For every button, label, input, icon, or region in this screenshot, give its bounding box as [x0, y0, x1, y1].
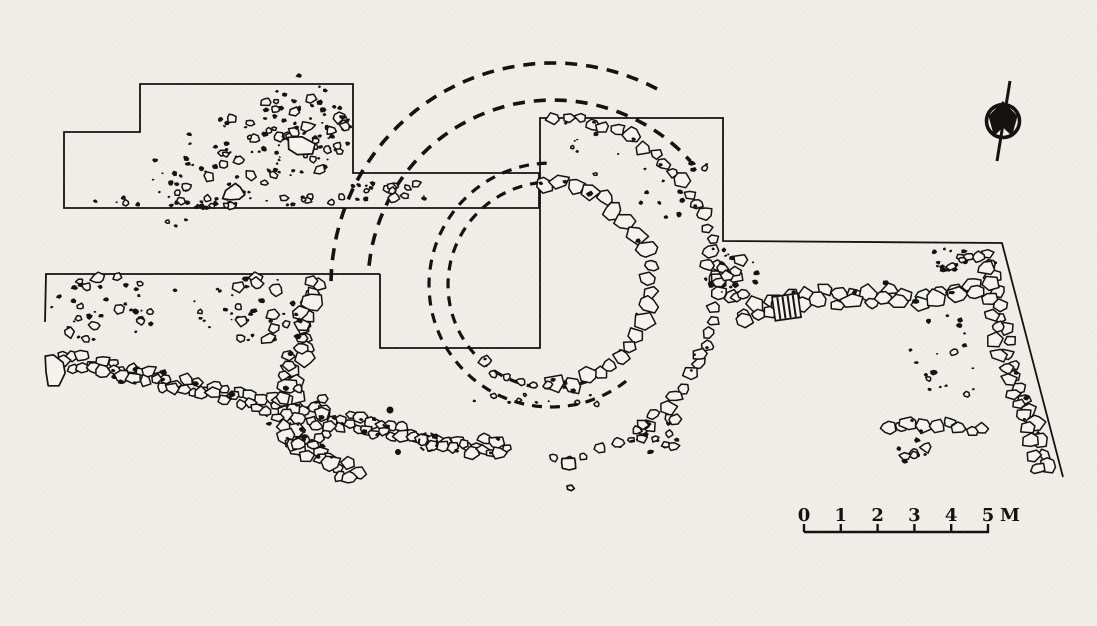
nw-dense-cluster-debris: [289, 174, 292, 176]
nw-trench-debris-debris: [191, 164, 194, 167]
outer-ring-wall-stone: [704, 327, 714, 339]
between-rings-specks-debris: [576, 139, 579, 141]
nw-dense-cluster-debris: [309, 117, 312, 120]
outer-ring-tail-cluster-stone: [661, 442, 669, 448]
inner-ring-wall-sparse-stone: [543, 381, 553, 389]
ring-junction-cluster-debris: [722, 247, 727, 252]
south-curved-wall-stone: [294, 344, 308, 354]
hatched-stone: [772, 293, 801, 320]
nw-trench-bottom-row-stone: [339, 194, 345, 200]
southwest-diagonal-wall-stone: [96, 365, 111, 378]
outer-ring-tail-cluster-debris: [674, 438, 679, 442]
inner-ring-wall-stone: [645, 261, 659, 271]
nw-trench-bottom-row-debris: [265, 200, 268, 202]
sw-trench-center-cluster-debris: [246, 339, 250, 342]
east-west-wall-stone: [911, 297, 929, 312]
nw-dense-cluster-debris: [274, 151, 279, 155]
east-trench-wall-stone: [1000, 364, 1014, 374]
outer-ring-wall-tail-stone: [550, 454, 558, 462]
scale-label-5: 5: [982, 505, 995, 526]
ring-junction-cluster-debris: [732, 282, 740, 288]
outer-ring-wall-tail-stone: [580, 453, 587, 460]
nw-trench-debris-debris: [291, 99, 297, 103]
nw-trench-debris-debris: [185, 162, 191, 166]
ring-junction-cluster-debris: [752, 261, 754, 263]
east-trench-wall-stone: [982, 276, 999, 290]
nw-dense-cluster-debris: [317, 157, 321, 160]
inner-ring-wall-stone: [624, 342, 636, 353]
nw-trench-debris-debris: [172, 171, 177, 177]
isolated-stone-south: [562, 458, 576, 470]
southwest-diagonal-wall-stone: [180, 373, 193, 384]
nw-dense-cluster-debris: [318, 145, 323, 149]
nw-trench-debris-stone: [327, 126, 336, 134]
sw-trench-northwest-cluster-debris: [56, 294, 62, 299]
southwest-diagonal-wall-stone: [237, 400, 246, 410]
sw-trench-mid-specks-debris: [172, 288, 177, 292]
nw-trench-debris-debris: [224, 141, 230, 146]
outer-ring-wall-stone: [574, 114, 585, 123]
sw-trench-northwest-cluster-debris: [97, 285, 102, 290]
nw-trench-debris-debris: [152, 179, 155, 181]
scale-bar-ticks: [804, 524, 989, 532]
nw-trench-debris-debris: [263, 117, 268, 120]
nw-trench-debris-debris: [345, 142, 350, 146]
nw-trench-debris-stone: [223, 152, 230, 157]
sw-trench-mid-specks-stone: [198, 309, 203, 313]
nw-trench-bottom-row-debris: [214, 197, 218, 201]
outer-ring-wall-stone: [674, 173, 691, 188]
east-corner-cluster-debris: [936, 261, 941, 265]
speck-a: [395, 449, 401, 455]
east-trench-inner-specks-debris: [930, 370, 938, 376]
sw-trench-northwest-cluster-stone: [75, 316, 82, 321]
southeast-below-stones-stone: [920, 443, 931, 453]
outer-ring-wall-lower-stone: [661, 401, 678, 416]
inner-ring-wall-sparse-stone: [478, 355, 491, 366]
scale-label-4: 4: [945, 505, 958, 526]
ring-bottom-specks-stone: [524, 394, 527, 397]
nw-corridor-stones-debris: [370, 181, 376, 185]
south-wall-west-bulge-stone: [317, 395, 328, 404]
nw-dense-cluster-debris: [276, 162, 279, 165]
east-corner-cluster-debris: [961, 249, 968, 253]
south-curved-wall-stone: [277, 380, 297, 393]
outer-ring-wall-stone: [697, 208, 712, 220]
nw-dense-cluster-debris: [272, 114, 278, 119]
scale-label-0: 0: [798, 505, 811, 526]
nw-trench-debris-debris: [174, 224, 178, 227]
between-rings-specks-debris: [638, 200, 643, 205]
inner-ring-wall-stone: [579, 367, 596, 383]
nw-trench-bottom-row-stone: [204, 195, 211, 202]
ring-bottom-specks-debris: [473, 400, 476, 403]
nw-trench-debris-stone: [228, 114, 236, 122]
east-west-wall-stone: [736, 313, 753, 327]
nw-dense-cluster-debris: [244, 126, 248, 129]
east-trench-wall-stone: [982, 293, 998, 304]
southwest-diagonal-wall-stone: [437, 441, 449, 451]
nw-trench-bottom-row-debris: [290, 202, 296, 206]
nw-trench-debris-stone: [261, 180, 268, 185]
outer-ring-wall-stone: [706, 302, 719, 312]
nw-trench-bottom-row-stone: [328, 199, 335, 205]
inner-dashed-ring-inner: [448, 182, 606, 388]
southwest-diagonal-wall-stone: [165, 383, 179, 394]
east-trench-wall-stone: [1023, 433, 1039, 446]
nw-trench-debris-stone: [182, 183, 191, 190]
nw-trench-debris-debris: [179, 174, 183, 178]
inner-ring-wall-sparse-stone: [504, 374, 511, 381]
ring-bottom-specks-debris: [548, 400, 550, 402]
sw-trench-center-cluster-stone: [237, 335, 245, 342]
ring-bottom-specks-stone: [517, 398, 522, 402]
ring-junction-cluster-debris: [727, 253, 730, 255]
nw-trench-debris-debris: [296, 73, 302, 78]
nw-dense-cluster-debris: [263, 107, 270, 112]
east-trench-inner-specks-debris: [972, 388, 975, 390]
scale-label-1: 1: [835, 505, 848, 526]
nw-dense-cluster-debris: [321, 122, 324, 124]
nw-trench-debris-debris: [332, 105, 337, 109]
outer-ring-tail-cluster-stone: [666, 430, 673, 438]
between-rings-specks-debris: [657, 201, 662, 205]
east-trench-inner-specks-debris: [971, 367, 974, 369]
between-rings-specks-debris: [644, 190, 649, 194]
nw-corridor-stones-debris: [355, 198, 360, 201]
nw-trench-bottom-row-debris: [168, 204, 174, 208]
nw-dense-cluster-stone: [334, 143, 341, 150]
sw-trench-center-cluster-stone: [235, 317, 247, 327]
sw-trench-northwest-cluster-debris: [73, 321, 76, 323]
nw-trench-debris-debris: [184, 218, 188, 221]
sw-trench-center-cluster-debris: [276, 279, 279, 281]
between-rings-specks-debris: [677, 190, 683, 195]
nw-corridor-stones-stone: [405, 185, 412, 190]
between-rings-specks-debris: [677, 212, 683, 218]
sw-trench-center-cluster-stone: [269, 324, 280, 334]
east-corner-cluster-debris: [936, 265, 940, 268]
inner-ring-wall-debris: [635, 313, 638, 315]
nw-trench-debris-debris: [227, 182, 232, 186]
nw-diamond-stone: [288, 137, 315, 155]
nw-trench-bottom-row-debris: [249, 197, 252, 199]
nw-trench-debris-debris: [261, 146, 267, 152]
nw-trench-debris-debris: [224, 125, 226, 127]
nw-trench-debris-debris: [152, 158, 158, 162]
nw-corridor-stones-debris: [421, 197, 427, 201]
east-west-wall-stone: [809, 292, 826, 307]
outer-ring-wall-stone: [545, 113, 559, 125]
inner-ring-wall-stone: [639, 272, 655, 285]
sw-trench-mid-specks-debris: [208, 326, 212, 328]
east-trench-wall-stone: [1031, 463, 1045, 473]
southeast-below-stones-debris: [897, 446, 902, 451]
east-trench-inner-specks-debris: [936, 353, 938, 355]
east-trench-wall-stone: [1027, 450, 1041, 462]
ring-bottom-specks-stone: [491, 393, 497, 398]
nw-trench-debris-stone: [219, 161, 227, 169]
nw-dense-cluster-stone: [246, 120, 255, 125]
inner-ring-wall-sparse-stone: [529, 382, 537, 388]
nw-edge-stone: [223, 183, 245, 199]
nw-trench-debris-debris: [188, 142, 192, 145]
east-trench-inner-specks-debris: [944, 384, 947, 387]
nw-dense-cluster-debris: [320, 107, 327, 112]
outer-ring-wall-stone: [702, 224, 713, 232]
nw-dense-cluster-stone: [261, 98, 271, 105]
nw-dense-cluster-debris: [279, 156, 281, 158]
nw-dense-cluster-debris: [250, 151, 253, 153]
sw-trench-mid-specks-debris: [193, 300, 195, 302]
sw-trench-northwest-cluster-stone: [137, 318, 145, 325]
southeast-wall-stone: [880, 421, 896, 434]
sw-trench-center-cluster-debris: [258, 298, 265, 303]
sw-trench-center-cluster-debris: [291, 304, 295, 307]
sw-trench-northwest-cluster-debris: [103, 297, 109, 301]
nw-dense-cluster-debris: [293, 121, 297, 125]
outer-ring-tail-cluster-debris: [647, 450, 654, 455]
east-trench-inner-specks-stone: [950, 349, 958, 356]
outer-ring-wall-lower-stone: [683, 368, 698, 380]
nw-trench-debris-debris: [317, 99, 324, 105]
nw-trench-debris-debris: [218, 117, 223, 122]
east-trench-inner-specks-debris: [957, 317, 963, 322]
nw-dense-cluster-stone: [306, 94, 317, 103]
nw-trench-debris-stone: [175, 190, 181, 195]
nw-corridor-stones-stone: [413, 181, 422, 187]
sw-trench-center-cluster-stone: [261, 333, 275, 343]
ring-junction-cluster-debris: [752, 280, 758, 285]
nw-trench-debris-debris: [323, 89, 328, 93]
nw-dense-cluster-debris: [326, 159, 328, 161]
inner-ring-wall-sparse-stone: [489, 371, 496, 378]
sw-trench-center-cluster-stone: [283, 321, 290, 328]
outer-ring-wall-stone: [708, 235, 719, 243]
sw-trench-northwest-cluster-debris: [123, 302, 127, 305]
sw-trench-northwest-cluster-stone: [113, 273, 122, 281]
nw-dense-cluster-stone: [272, 106, 280, 112]
southeast-below-stones-debris: [923, 453, 927, 456]
nw-trench-debris-debris: [161, 172, 163, 174]
nw-corridor-stones-debris: [365, 185, 368, 188]
inner-ring-wall-stone: [635, 313, 656, 330]
sw-trench-northwest-cluster-debris: [134, 331, 137, 334]
southwest-diagonal-wall-stone: [344, 420, 355, 428]
scale-unit: M: [1000, 505, 1020, 526]
outer-ring-wall-stone: [708, 317, 720, 325]
north-corner-specks-stone: [702, 165, 708, 171]
north-arrow-icon: [987, 81, 1020, 161]
nw-corridor-stones-debris: [351, 184, 356, 189]
sw-trench-mid-specks-stone: [236, 304, 242, 310]
nw-dense-cluster-debris: [317, 134, 322, 137]
nw-corridor-stones-stone: [364, 189, 370, 193]
nw-trench-bottom-row-stone: [123, 200, 129, 207]
sw-trench-northwest-cluster-debris: [71, 298, 77, 303]
east-corner-cluster-debris: [932, 249, 937, 254]
nw-trench-bottom-row-debris: [93, 199, 98, 203]
sw-trench-northwest-cluster-debris: [141, 310, 143, 312]
nw-trench-debris-debris: [258, 150, 261, 153]
nw-dense-cluster-debris: [278, 158, 281, 161]
outer-ring-wall-stone: [684, 191, 695, 199]
outer-ring-wall-stone: [651, 150, 662, 160]
nw-trench-debris-stone: [266, 127, 272, 133]
sw-trench-northwest-cluster-stone: [137, 282, 143, 287]
nw-trench-debris-debris: [277, 171, 281, 174]
drawing-layer: [45, 63, 1063, 491]
between-rings-specks-debris: [680, 198, 686, 203]
south-wall-west-bulge-debris: [266, 422, 273, 426]
nw-trench-debris-debris: [213, 145, 218, 149]
nw-dense-cluster-stone: [248, 135, 252, 139]
nw-dense-cluster-debris: [278, 144, 280, 146]
nw-trench-debris-stone: [274, 100, 279, 104]
ring-junction-cluster-stone: [737, 290, 750, 299]
nw-trench-debris-debris: [212, 164, 218, 169]
southeast-wall-stone: [929, 419, 944, 432]
ring-bottom-specks-debris: [589, 394, 592, 397]
sw-trench-center-cluster-stone: [266, 309, 280, 319]
east-trench-inner-specks-debris: [962, 343, 968, 348]
scale-label-3: 3: [908, 505, 921, 526]
ring-bottom-specks-debris: [507, 401, 511, 404]
sw-trench-northwest-cluster-debris: [132, 308, 139, 314]
nw-trench-bottom-row-stone: [224, 203, 229, 208]
between-rings-specks-stone: [571, 146, 574, 149]
inner-ring-wall-stone: [628, 328, 642, 343]
sw-trench-mid-specks-debris: [231, 319, 233, 321]
sw-trench-northwest-cluster-debris: [86, 313, 93, 320]
nw-trench-debris-debris: [337, 106, 342, 111]
nw-trench-bottom-row-debris: [167, 196, 170, 198]
nw-dense-cluster-stone: [272, 127, 277, 130]
east-trench-wall-stone: [985, 309, 1000, 321]
sw-trench-center-cluster-debris: [223, 308, 229, 312]
between-rings-specks-debris: [617, 153, 619, 155]
sw-trench-northwest-cluster-stone: [147, 309, 154, 315]
sw-trench-center-cluster-debris: [251, 334, 255, 338]
sw-trench-northwest-cluster-stone: [88, 322, 100, 330]
outer-ring-wall-lower-stone: [666, 391, 683, 400]
scale-label-2: 2: [871, 505, 884, 526]
nw-trench-debris-debris: [199, 166, 205, 171]
nw-dense-cluster-stone: [339, 122, 349, 130]
ring-junction-cluster-debris: [754, 270, 760, 275]
inner-ring-wall-stone: [636, 242, 658, 258]
outer-ring-wall-lower-stone: [647, 410, 660, 420]
between-rings-specks-debris: [575, 150, 579, 153]
sw-trench-northwest-cluster-debris: [123, 283, 129, 288]
east-trench-inner-specks-debris: [927, 388, 931, 391]
between-rings-specks-debris: [664, 215, 669, 219]
sw-trench-northwest-cluster-debris: [137, 294, 141, 297]
nw-dense-cluster-stone: [314, 165, 325, 174]
nw-dense-cluster-debris: [310, 104, 314, 108]
outer-ring-wall-stone: [636, 141, 650, 155]
nw-trench-debris-debris: [282, 92, 287, 97]
ring-bottom-specks-debris: [535, 401, 539, 404]
nw-trench-bottom-row-debris: [135, 202, 140, 207]
between-rings-specks-debris: [643, 168, 647, 171]
ring-junction-cluster-debris: [729, 286, 733, 289]
southwest-diagonal-wall-debris: [454, 449, 459, 453]
south-wall-west-bulge-stone: [314, 434, 324, 444]
ring-junction-cluster-stone: [734, 255, 748, 267]
ring-bottom-specks-stone: [594, 401, 599, 406]
sw-trench-northwest-cluster-debris: [148, 321, 154, 326]
sw-trench-northwest-cluster-debris: [91, 338, 96, 341]
nw-trench-debris-stone: [270, 171, 278, 178]
sw-trench-northwest-cluster-stone: [65, 327, 75, 338]
sw-trench-northwest-cluster-stone: [82, 336, 90, 342]
north-corner-specks-debris: [690, 167, 697, 172]
east-trench-wall-stone: [978, 261, 995, 274]
east-corner-cluster-debris: [949, 250, 952, 253]
between-rings-specks-stone: [593, 173, 597, 176]
sw-trench-center-cluster-debris: [231, 294, 234, 296]
east-trench-wall-stone: [988, 332, 1003, 347]
outer-ring-wall-tail-stone: [612, 438, 625, 447]
nw-dense-cluster-stone: [289, 107, 299, 116]
east-west-wall-stone: [746, 296, 763, 312]
southeast-below-stones-debris: [914, 437, 921, 443]
nw-trench-bottom-row-debris: [116, 201, 118, 203]
nw-corridor-stones-debris: [356, 183, 361, 187]
sw-trench-northwest-cluster-debris: [71, 285, 78, 290]
nw-trench-debris-stone: [165, 220, 169, 223]
inner-ring-wall-stone: [639, 296, 658, 313]
nw-trench-bottom-row-debris: [200, 200, 204, 203]
scale-bar: 0 1 2 3 4 5 M: [798, 505, 1020, 532]
nw-trench-debris-debris: [174, 182, 180, 186]
east-trench-inner-specks-debris: [909, 348, 913, 352]
sw-trench-northwest-cluster-debris: [50, 306, 53, 309]
east-trench-wall-stone: [993, 321, 1005, 332]
nw-trench-debris-debris: [158, 191, 161, 194]
sw-trench-mid-specks-debris: [198, 317, 202, 320]
nw-trench-bottom-row-stone: [209, 203, 215, 208]
east-trench-wall-stone: [1013, 399, 1025, 408]
nw-trench-bottom-row-stone: [280, 195, 289, 200]
nw-trench-debris-debris: [275, 90, 279, 93]
east-trench-wall-stone: [1004, 337, 1015, 346]
sw-trench-northwest-cluster-debris: [77, 335, 81, 339]
east-trench-inner-specks-stone: [926, 377, 931, 382]
east-trench-inner-specks-debris: [956, 323, 963, 328]
outer-ring-wall-stone: [622, 127, 640, 142]
east-trench-inner-specks-debris: [914, 361, 919, 364]
outer-ring-wall-tail-stone: [594, 443, 605, 453]
nw-trench-debris-debris: [168, 180, 173, 185]
ring-junction-cluster-stone: [700, 260, 714, 271]
nw-trench-bottom-row-debris: [286, 203, 289, 206]
sw-trench-mid-specks-debris: [203, 320, 207, 323]
outer-ring-wall-stone: [702, 245, 719, 258]
southwest-diagonal-wall-stone: [459, 440, 468, 449]
sw-trench-northwest-cluster-stone: [82, 283, 91, 291]
nw-corridor-stones-stone: [400, 193, 408, 199]
outer-ring-tail-cluster-stone: [637, 435, 647, 443]
between-rings-specks-debris: [662, 179, 666, 182]
sw-trench-center-cluster-stone: [269, 284, 282, 296]
southeast-below-stones-stone: [899, 453, 911, 460]
site-plan-drawing: 0 1 2 3 4 5 M: [0, 0, 1097, 626]
nw-trench-debris-stone: [301, 122, 316, 132]
east-corner-cluster-stone: [959, 258, 966, 263]
nw-trench-debris-debris: [247, 191, 251, 194]
